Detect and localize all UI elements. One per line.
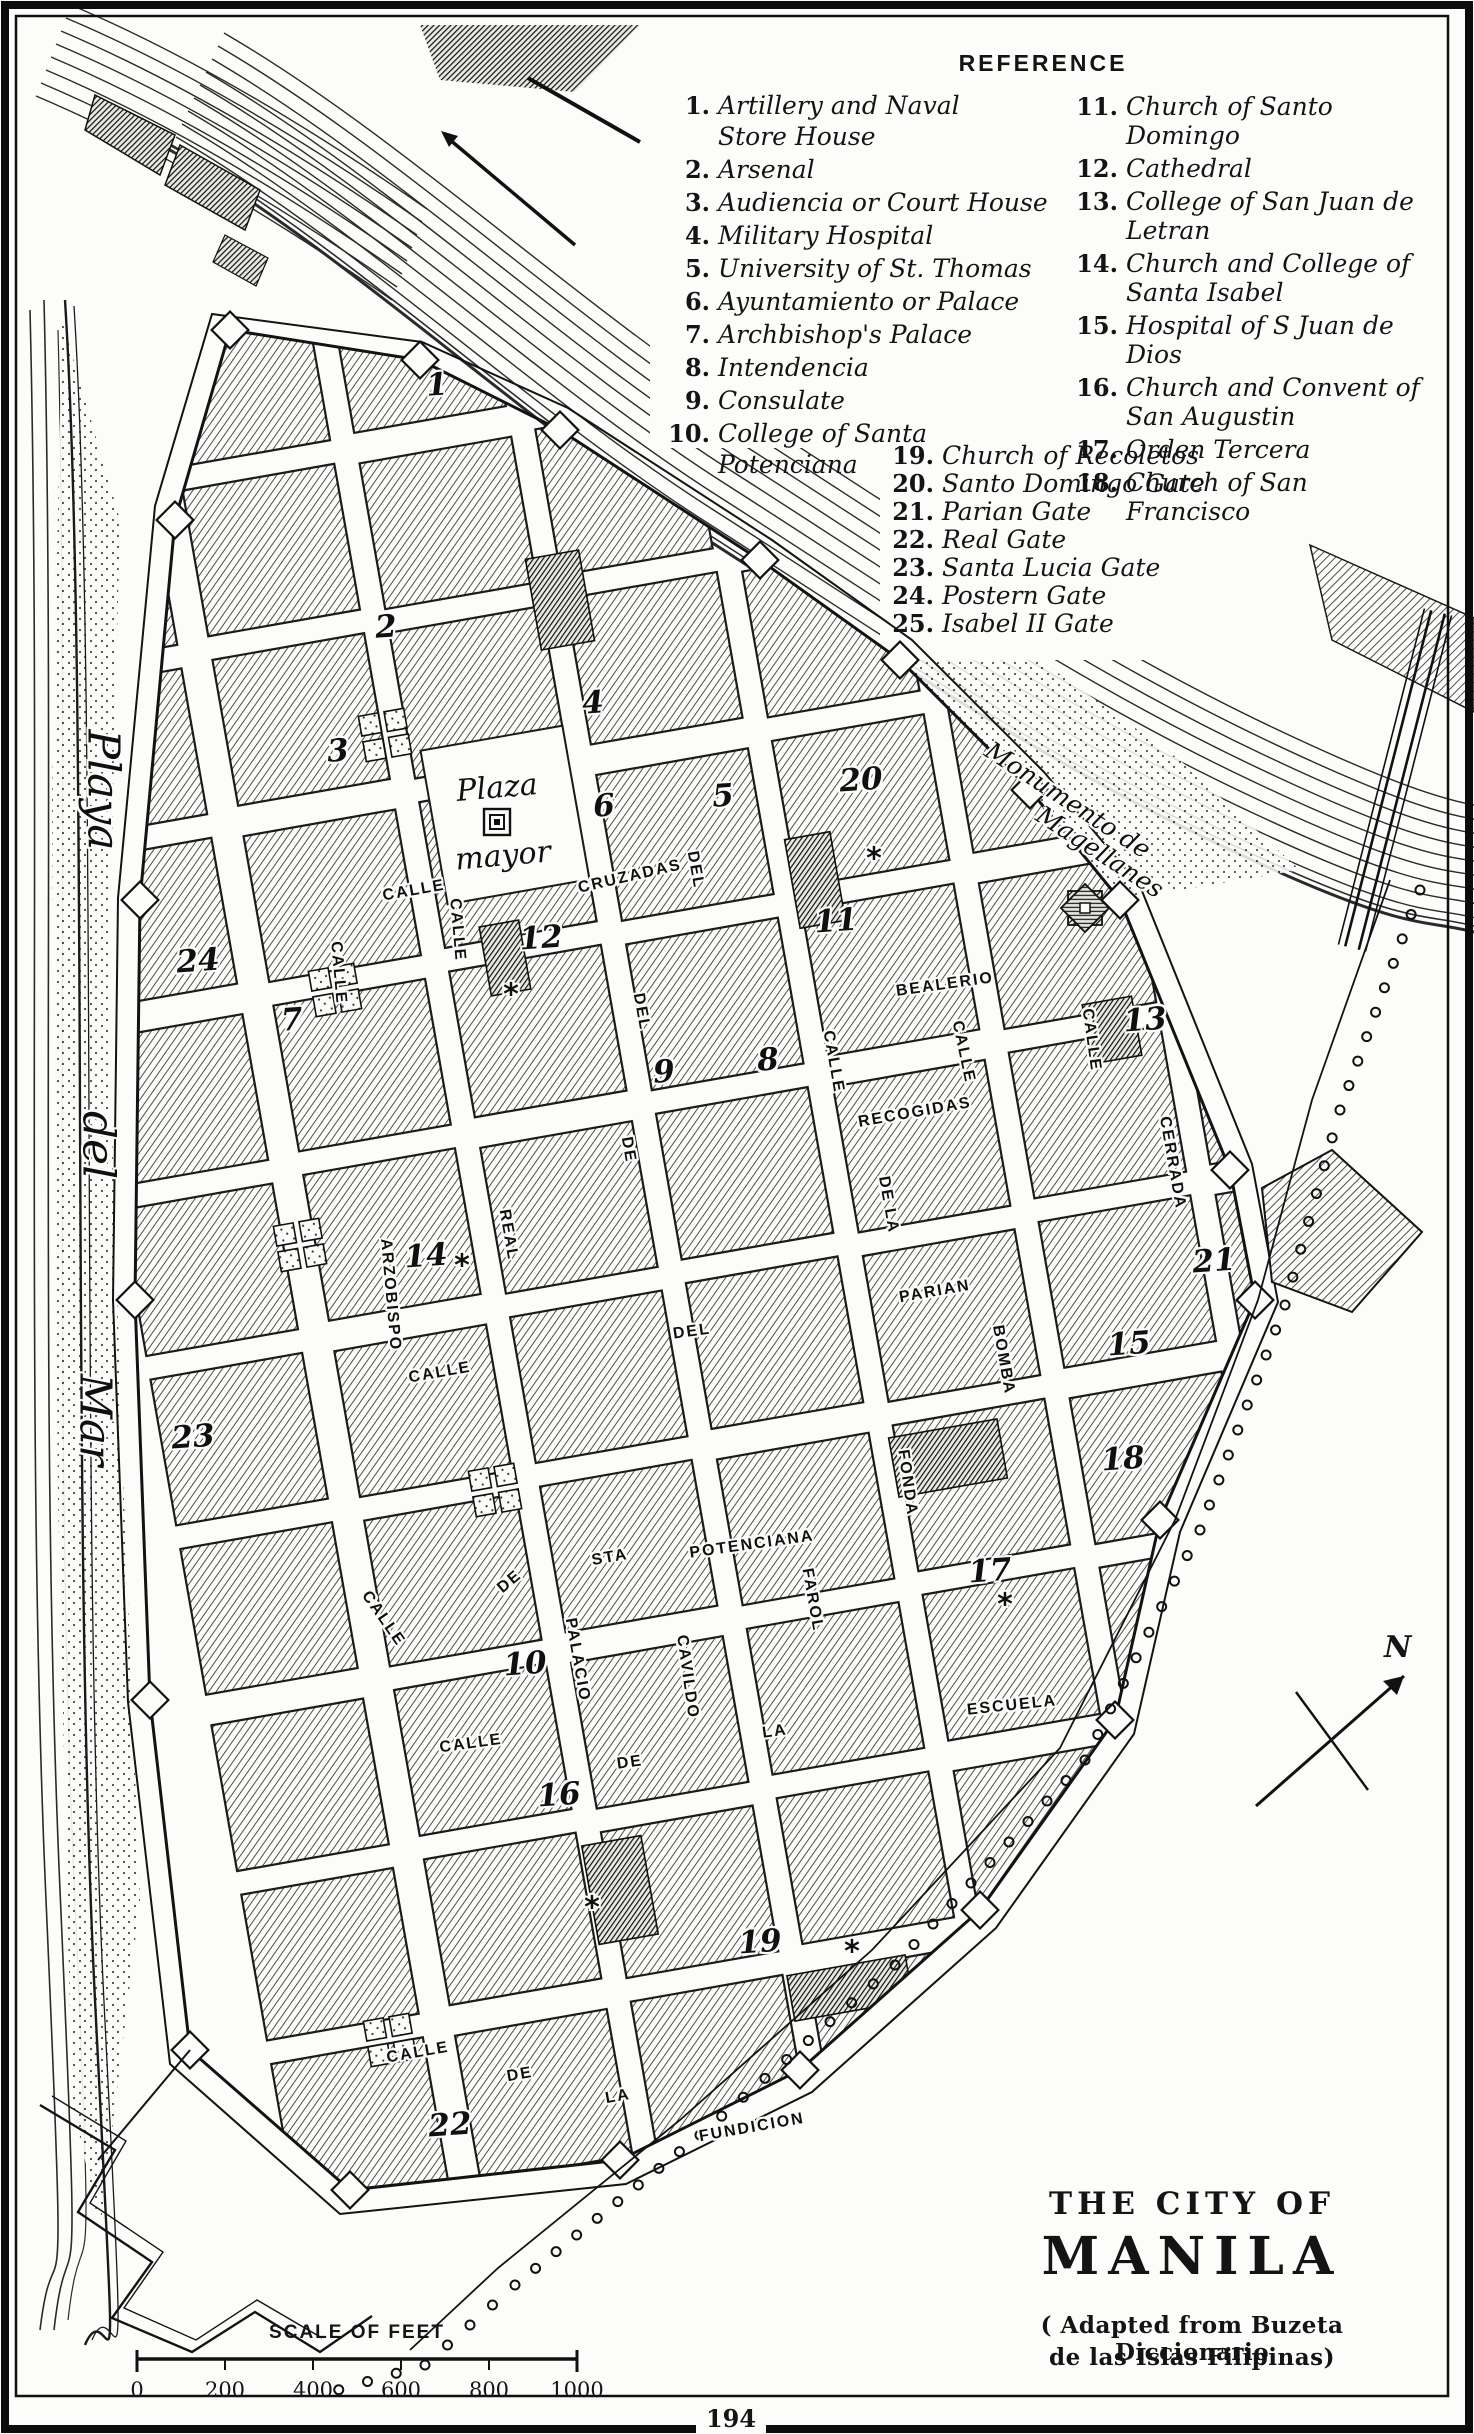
sea-shoreline-west	[30, 300, 140, 2345]
legend-item-number: 25.	[888, 610, 942, 638]
legend-item-number: 3.	[664, 187, 718, 218]
legend-item: 1.Artillery and Naval Store House	[664, 90, 1068, 152]
legend-column-3: 19.Church of Recoletos20.Santo Domingo G…	[888, 442, 1272, 638]
scale-tick-label: 400	[281, 2378, 345, 2402]
legend-item-label: College of San Juan de Letran	[1126, 187, 1438, 245]
legend-item: 14.Church and College of Santa Isabel	[1072, 249, 1468, 307]
magellan-monument-rosette	[1061, 884, 1109, 932]
legend-item-number: 24.	[888, 582, 942, 610]
legend-item-number: 21.	[888, 498, 942, 526]
legend-item-label: Church and Convent of San Augustin	[1126, 373, 1438, 431]
legend-item: 7.Archbishop's Palace	[664, 319, 1068, 350]
scale-bar: SCALE OF FEET 02004006008001000	[100, 2316, 620, 2420]
legend-item: 15.Hospital of S Juan de Dios	[1072, 311, 1468, 369]
legend-item: 8.Intendencia	[664, 352, 1068, 383]
scale-tick-label: 800	[457, 2378, 521, 2402]
scale-title: SCALE OF FEET	[100, 2322, 614, 2344]
scale-tick-label: 200	[193, 2378, 257, 2402]
legend-item-number: 15.	[1072, 311, 1126, 340]
legend-title: REFERENCE	[938, 50, 1148, 77]
legend-item-label: Audiencia or Court House	[718, 187, 1048, 218]
legend-item-label: Church of Santo Domingo	[1126, 92, 1438, 150]
legend-column-1: 1.Artillery and Naval Store House2.Arsen…	[664, 90, 1068, 482]
legend-item: 11.Church of Santo Domingo	[1072, 92, 1468, 150]
legend-item-label: Cathedral	[1126, 154, 1252, 183]
map-title-line2: MANILA	[982, 2226, 1402, 2287]
legend-item: 21.Parian Gate	[888, 498, 1272, 526]
legend-item: 25.Isabel II Gate	[888, 610, 1272, 638]
legend-item-number: 8.	[664, 352, 718, 383]
legend-item-number: 2.	[664, 154, 718, 185]
legend-item-label: Ayuntamiento or Palace	[718, 286, 1019, 317]
legend-item: 3.Audiencia or Court House	[664, 187, 1068, 218]
legend-item-label: University of St. Thomas	[718, 253, 1032, 284]
legend-item-number: 22.	[888, 526, 942, 554]
legend-item-label: Consulate	[718, 385, 845, 416]
legend-item-label: Parian Gate	[942, 498, 1091, 526]
legend-item-number: 6.	[664, 286, 718, 317]
legend-item-label: Isabel II Gate	[942, 610, 1114, 638]
legend-item-label: Artillery and Naval Store House	[718, 90, 970, 152]
scale-tick-label: 1000	[545, 2378, 609, 2402]
legend-item-label: Church of Recoletos	[942, 442, 1199, 470]
plaza-monument	[484, 809, 510, 835]
legend-item-label: Hospital of S Juan de Dios	[1126, 311, 1438, 369]
legend-item-number: 19.	[888, 442, 942, 470]
legend-item: 13.College of San Juan de Letran	[1072, 187, 1468, 245]
page-number: 194	[696, 2404, 766, 2433]
map-credit-line2: de las Islas Filipinas)	[982, 2344, 1402, 2371]
legend-item-number: 23.	[888, 554, 942, 582]
legend-item: 5.University of St. Thomas	[664, 253, 1068, 284]
legend-item-number: 16.	[1072, 373, 1126, 402]
legend-item-label: Intendencia	[718, 352, 869, 383]
scale-tick-label: 600	[369, 2378, 433, 2402]
legend-item: 22.Real Gate	[888, 526, 1272, 554]
scale-bar-line	[100, 2350, 620, 2378]
legend-item-label: Archbishop's Palace	[718, 319, 972, 350]
legend-item-number: 7.	[664, 319, 718, 350]
legend-item: 16.Church and Convent of San Augustin	[1072, 373, 1468, 431]
legend-item-label: Santa Lucia Gate	[942, 554, 1160, 582]
legend-item-label: Santo Domingo Gate	[942, 470, 1205, 498]
legend-item-number: 12.	[1072, 154, 1126, 183]
legend-item-label: Arsenal	[718, 154, 815, 185]
legend-item-number: 9.	[664, 385, 718, 416]
legend-item: 2.Arsenal	[664, 154, 1068, 185]
legend-item-number: 5.	[664, 253, 718, 284]
legend-item-number: 10.	[664, 418, 718, 449]
legend-item-number: 11.	[1072, 92, 1126, 121]
legend-item: 23.Santa Lucia Gate	[888, 554, 1272, 582]
map-title-line1: THE CITY OF	[982, 2186, 1402, 2222]
legend-item: 6.Ayuntamiento or Palace	[664, 286, 1068, 317]
legend-item-number: 13.	[1072, 187, 1126, 216]
legend-item-number: 1.	[664, 90, 718, 121]
legend-item-label: Real Gate	[942, 526, 1066, 554]
legend-item-number: 4.	[664, 220, 718, 251]
legend-item: 24.Postern Gate	[888, 582, 1272, 610]
compass-north-arrow	[1256, 1676, 1404, 1806]
legend-item-number: 20.	[888, 470, 942, 498]
legend-item: 20.Santo Domingo Gate	[888, 470, 1272, 498]
legend-item-label: Military Hospital	[718, 220, 933, 251]
legend-item-label: Church and College of Santa Isabel	[1126, 249, 1438, 307]
compass-n-label: N	[1384, 1630, 1411, 1665]
legend-item-label: Postern Gate	[942, 582, 1106, 610]
map-page: REFERENCE 1.Artillery and Naval Store Ho…	[0, 0, 1474, 2434]
legend-item: 4.Military Hospital	[664, 220, 1068, 251]
legend-item: 12.Cathedral	[1072, 154, 1468, 183]
scale-tick-label: 0	[105, 2378, 169, 2402]
legend-item: 9.Consulate	[664, 385, 1068, 416]
legend-item: 19.Church of Recoletos	[888, 442, 1272, 470]
legend-item-number: 14.	[1072, 249, 1126, 278]
